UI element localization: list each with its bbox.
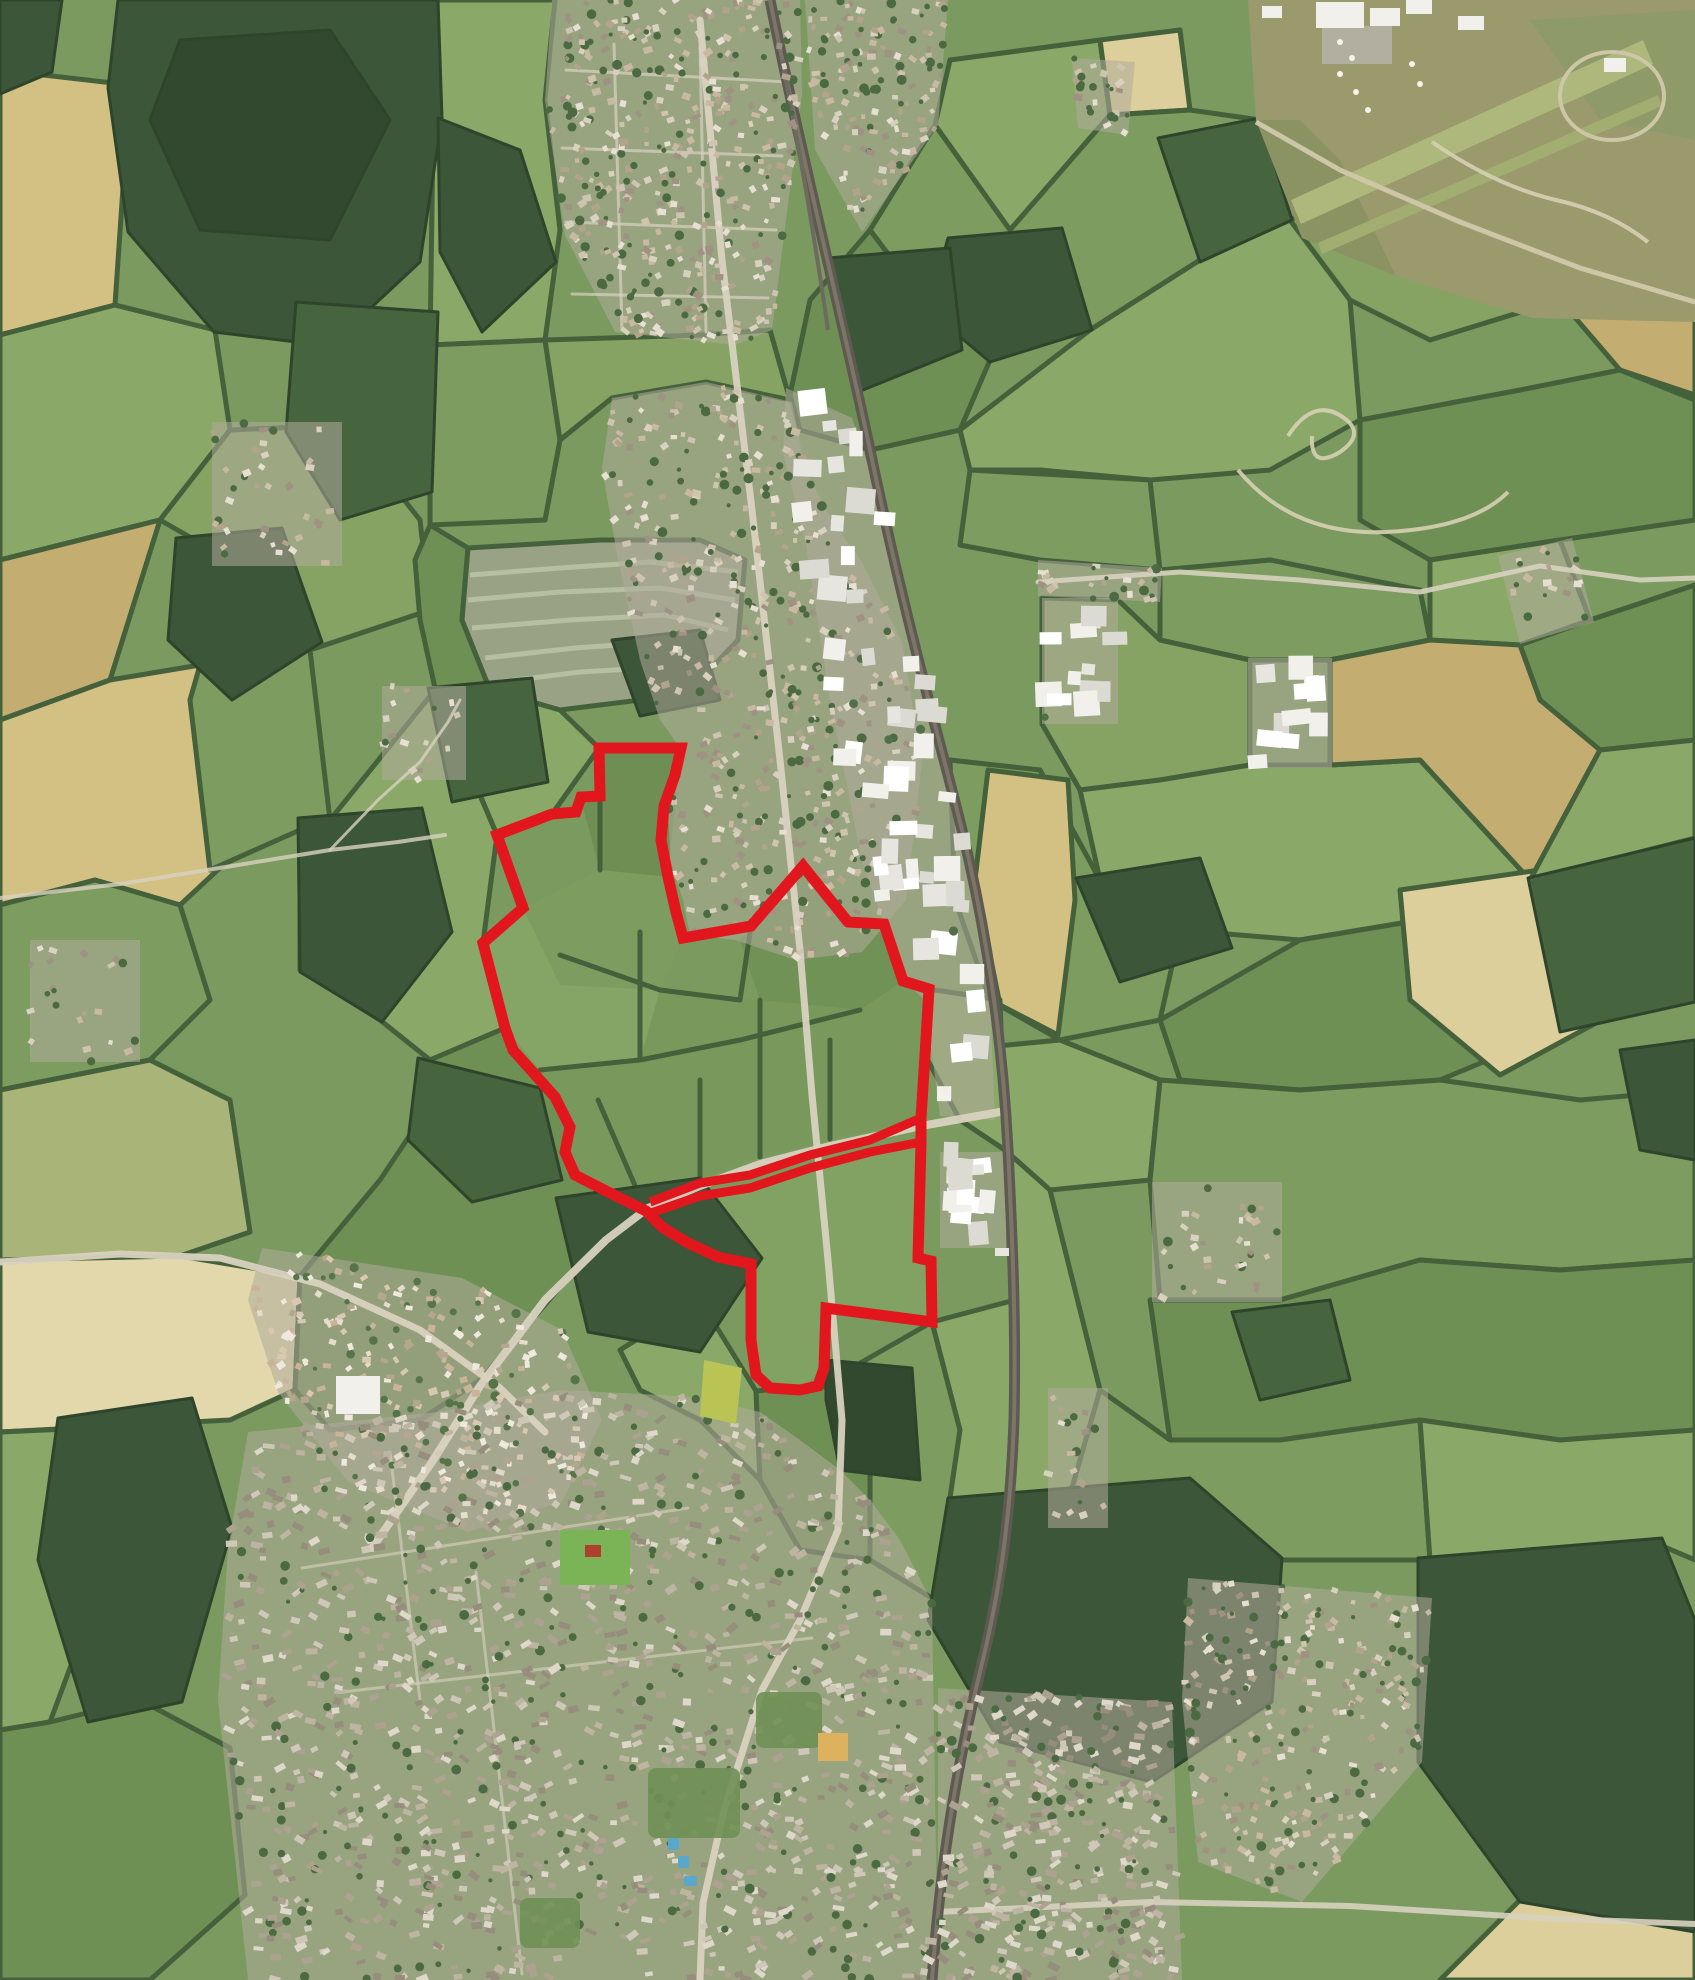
building	[453, 1586, 462, 1591]
tree	[1275, 1866, 1284, 1875]
building	[871, 683, 878, 689]
building	[1387, 1653, 1392, 1659]
tree	[482, 1684, 489, 1691]
tree	[235, 1812, 243, 1820]
building	[874, 889, 890, 902]
building	[435, 1728, 442, 1734]
tree	[668, 1906, 677, 1915]
building	[499, 1806, 510, 1811]
building	[321, 560, 330, 566]
tree	[51, 988, 56, 993]
building	[539, 1717, 546, 1723]
tree	[690, 335, 694, 339]
tree	[557, 193, 566, 202]
tree	[1167, 1740, 1175, 1748]
tree	[1243, 1685, 1249, 1691]
building	[966, 1703, 973, 1710]
building	[920, 1968, 928, 1976]
building	[1158, 1950, 1165, 1955]
tree	[623, 178, 630, 185]
tree	[580, 1828, 585, 1833]
building	[672, 871, 677, 876]
tree	[670, 630, 677, 637]
tree	[861, 898, 870, 907]
tree	[1311, 1797, 1316, 1802]
tree	[787, 794, 791, 798]
building	[259, 427, 268, 433]
tree	[952, 1749, 961, 1758]
building	[725, 95, 732, 103]
building	[226, 1540, 238, 1547]
building	[626, 444, 633, 451]
tree	[118, 959, 127, 968]
building	[1256, 729, 1282, 748]
building	[297, 1319, 306, 1324]
tree	[781, 675, 785, 679]
building	[413, 1400, 421, 1407]
tree	[857, 733, 867, 743]
building	[756, 1910, 764, 1917]
building	[1284, 1636, 1291, 1643]
tree	[505, 1415, 510, 1420]
tree	[715, 1537, 722, 1544]
building	[284, 1801, 295, 1808]
tree	[924, 4, 930, 10]
building	[890, 169, 896, 174]
tree	[1168, 1264, 1173, 1269]
building	[564, 204, 572, 210]
tree	[1266, 1705, 1271, 1710]
tree	[634, 314, 643, 323]
tree	[735, 589, 740, 594]
tree	[316, 1447, 323, 1454]
building	[454, 1855, 465, 1863]
tree	[821, 793, 827, 799]
tree	[1075, 1864, 1080, 1869]
tree	[821, 35, 827, 41]
building	[1067, 671, 1081, 686]
tree	[884, 735, 893, 744]
tree	[849, 699, 858, 708]
building	[509, 1968, 516, 1974]
tree	[432, 706, 437, 711]
tree	[630, 162, 637, 169]
tree	[775, 1568, 784, 1577]
building	[792, 96, 797, 102]
tree	[393, 1326, 400, 1333]
tree	[333, 1451, 338, 1456]
tree	[691, 537, 696, 542]
building	[734, 441, 739, 446]
tree	[512, 1309, 521, 1318]
tree	[1100, 1834, 1104, 1838]
building	[751, 825, 760, 831]
tree	[915, 1795, 924, 1804]
building	[404, 1432, 412, 1439]
building	[657, 208, 666, 215]
tree	[760, 1418, 764, 1422]
building	[632, 1499, 644, 1505]
building	[1081, 663, 1095, 675]
tree	[452, 1870, 461, 1879]
tree	[808, 717, 814, 723]
tree	[684, 449, 689, 454]
tree	[280, 1577, 288, 1585]
building	[827, 456, 845, 474]
building	[867, 54, 876, 60]
building	[637, 1948, 648, 1955]
building	[1232, 1806, 1241, 1813]
tree	[437, 1903, 442, 1908]
tree	[681, 311, 688, 318]
parked-aircraft	[1409, 61, 1415, 67]
tree	[1104, 576, 1108, 580]
building	[581, 1593, 591, 1600]
building	[775, 926, 781, 931]
sand-patch	[818, 1733, 848, 1761]
building	[623, 233, 630, 240]
tree	[1361, 1779, 1368, 1786]
building	[680, 626, 685, 632]
building	[966, 989, 986, 1013]
tree	[731, 572, 737, 578]
building	[386, 1375, 394, 1380]
tree	[858, 27, 863, 32]
building	[267, 1935, 275, 1941]
tree	[878, 681, 883, 686]
building	[914, 674, 936, 690]
aerial-photo-stage	[0, 0, 1695, 1980]
tree	[495, 1652, 504, 1661]
building	[822, 420, 837, 432]
parked-aircraft	[1353, 89, 1359, 95]
tree	[1222, 1636, 1230, 1644]
tree	[737, 813, 743, 819]
tree	[473, 1431, 481, 1439]
tree	[609, 32, 613, 36]
tree	[238, 1574, 244, 1580]
building	[1086, 1922, 1093, 1928]
building	[725, 1507, 733, 1513]
tree	[768, 689, 773, 694]
tree	[422, 1660, 431, 1669]
tree	[599, 67, 607, 75]
building	[459, 1885, 468, 1891]
building	[741, 1686, 749, 1694]
tree	[318, 1851, 327, 1860]
building	[540, 1586, 548, 1590]
tree	[824, 1511, 832, 1519]
building	[877, 1773, 888, 1779]
tree	[644, 29, 650, 35]
tree	[822, 1644, 829, 1651]
tree	[466, 1969, 470, 1973]
building	[808, 1494, 815, 1501]
building	[566, 1474, 570, 1480]
tree	[796, 817, 806, 827]
tree	[818, 47, 826, 55]
building	[347, 1610, 356, 1617]
tree	[430, 1289, 437, 1296]
tree	[407, 1764, 413, 1770]
tree	[1191, 1699, 1200, 1708]
tree	[766, 888, 773, 895]
building	[712, 86, 721, 92]
building	[751, 652, 757, 658]
tree	[775, 1450, 782, 1457]
tree	[606, 274, 614, 282]
building	[884, 1551, 891, 1557]
tree	[657, 144, 662, 149]
building	[538, 1787, 545, 1793]
tree	[654, 287, 663, 296]
tree	[352, 1474, 358, 1480]
tree	[1153, 1800, 1160, 1807]
tree	[895, 62, 904, 71]
tree	[785, 52, 794, 61]
building	[687, 166, 693, 173]
tree	[758, 232, 763, 237]
tree	[1109, 1958, 1118, 1967]
tree	[1109, 592, 1119, 602]
tree	[544, 1860, 548, 1864]
building	[285, 1398, 290, 1404]
field	[430, 340, 560, 525]
tree	[700, 858, 707, 865]
building	[913, 938, 939, 960]
building	[575, 158, 579, 163]
building	[889, 821, 917, 836]
building	[866, 720, 871, 726]
tree	[781, 103, 791, 113]
tree	[431, 1839, 436, 1844]
tree	[641, 278, 650, 287]
building	[395, 1975, 405, 1980]
building	[902, 148, 911, 155]
building	[618, 480, 623, 487]
building	[765, 719, 774, 726]
tree	[359, 1808, 364, 1813]
building	[843, 171, 847, 176]
building	[251, 1467, 259, 1473]
building	[1209, 1609, 1217, 1616]
building	[818, 1795, 825, 1800]
tree	[1407, 1654, 1413, 1660]
tree	[868, 840, 876, 848]
building	[1239, 1217, 1243, 1224]
building	[262, 1806, 271, 1812]
tree	[777, 597, 785, 605]
tree	[999, 1957, 1005, 1963]
tree	[941, 1942, 950, 1951]
building	[572, 1426, 580, 1431]
tree	[1361, 1818, 1370, 1827]
building	[257, 1310, 263, 1316]
building	[331, 1707, 340, 1714]
building	[227, 1753, 234, 1758]
tree	[721, 904, 728, 911]
tree	[807, 481, 815, 489]
building	[610, 1820, 617, 1825]
building	[1300, 1651, 1309, 1658]
building	[481, 1465, 488, 1470]
tree	[869, 1527, 874, 1532]
building	[798, 1748, 810, 1755]
building	[656, 1691, 666, 1698]
building	[317, 1454, 326, 1460]
hangar	[1458, 16, 1484, 30]
building	[1073, 690, 1100, 717]
tree	[87, 1057, 95, 1065]
tree	[896, 161, 904, 169]
building	[868, 701, 876, 707]
building	[1168, 1827, 1175, 1834]
tree	[643, 100, 647, 104]
building	[848, 16, 854, 21]
building	[383, 1451, 391, 1458]
building	[1092, 99, 1097, 105]
tree	[1152, 577, 1158, 583]
building	[817, 574, 848, 602]
tree	[648, 273, 652, 277]
building	[434, 1756, 442, 1764]
tree	[587, 39, 593, 45]
tree	[1256, 1841, 1266, 1851]
tree	[416, 1376, 423, 1383]
tree	[784, 472, 793, 481]
tree	[644, 91, 653, 100]
tree	[542, 1446, 549, 1453]
tree	[513, 1440, 519, 1446]
building	[811, 71, 820, 77]
building	[283, 1933, 291, 1939]
building	[697, 707, 705, 712]
building	[1338, 1814, 1343, 1821]
tree	[759, 669, 767, 677]
tree	[545, 110, 549, 114]
tree	[674, 1501, 682, 1509]
tree	[578, 1760, 584, 1766]
building	[853, 807, 862, 812]
building	[793, 459, 822, 477]
tree	[762, 491, 770, 499]
tree	[1015, 1924, 1023, 1932]
building	[950, 1042, 973, 1063]
building	[925, 53, 931, 58]
tree	[1204, 1184, 1212, 1192]
building	[516, 1852, 524, 1857]
building	[414, 1526, 424, 1532]
building	[541, 1871, 548, 1877]
building	[830, 515, 844, 532]
tree	[1044, 1797, 1053, 1806]
tree	[615, 1922, 619, 1926]
tree	[589, 1861, 593, 1865]
building	[1088, 1776, 1098, 1782]
building	[1102, 631, 1127, 645]
building	[881, 838, 898, 864]
tree	[608, 155, 612, 159]
building	[1281, 708, 1312, 726]
building	[512, 1881, 519, 1886]
tree	[1248, 1205, 1257, 1214]
building	[1344, 1789, 1351, 1796]
tree	[509, 1373, 514, 1378]
building	[307, 1681, 316, 1687]
building	[726, 1728, 734, 1735]
building	[1350, 1702, 1354, 1707]
tree	[1090, 595, 1096, 601]
tree	[748, 335, 753, 340]
tree	[1299, 1705, 1307, 1713]
tree	[519, 1578, 524, 1583]
tree	[647, 479, 654, 486]
tree	[1237, 1648, 1243, 1654]
building	[649, 1893, 659, 1899]
tree	[678, 1672, 683, 1677]
building	[938, 791, 957, 803]
building	[618, 26, 625, 31]
building	[797, 388, 827, 417]
building	[882, 179, 887, 185]
tree	[649, 1547, 657, 1555]
building	[715, 274, 724, 281]
tree	[1384, 1660, 1390, 1666]
tree	[329, 1273, 336, 1280]
tree	[492, 1762, 500, 1770]
building	[525, 1361, 530, 1368]
building	[579, 39, 585, 45]
building	[1344, 1833, 1353, 1839]
tree	[937, 1745, 945, 1753]
tree	[638, 1613, 647, 1622]
tree	[898, 101, 904, 107]
building	[637, 1887, 647, 1893]
tree	[1025, 1728, 1030, 1733]
tree	[1414, 1724, 1420, 1730]
tree	[1070, 1413, 1078, 1421]
tree	[936, 1731, 941, 1736]
tree	[211, 436, 219, 444]
tree	[1130, 1770, 1134, 1774]
building	[855, 869, 861, 874]
tree	[1249, 1613, 1258, 1622]
tree	[1315, 1612, 1321, 1618]
tree	[457, 1729, 463, 1735]
building	[529, 1888, 536, 1895]
tree	[627, 417, 633, 423]
tree	[1109, 87, 1113, 91]
building	[238, 1619, 245, 1625]
tree	[1221, 1606, 1225, 1610]
tree	[1152, 564, 1162, 574]
building	[823, 677, 844, 691]
tree	[1027, 1866, 1037, 1876]
tree	[842, 1920, 852, 1930]
tree	[622, 1885, 626, 1889]
building	[862, 782, 890, 799]
building	[701, 1862, 708, 1867]
building	[1097, 681, 1110, 702]
building	[785, 1817, 794, 1822]
building	[657, 201, 664, 206]
building	[730, 581, 737, 588]
building	[425, 1335, 432, 1343]
building	[762, 1453, 771, 1460]
tree	[346, 1350, 355, 1359]
building	[642, 254, 649, 260]
tree	[794, 8, 802, 16]
